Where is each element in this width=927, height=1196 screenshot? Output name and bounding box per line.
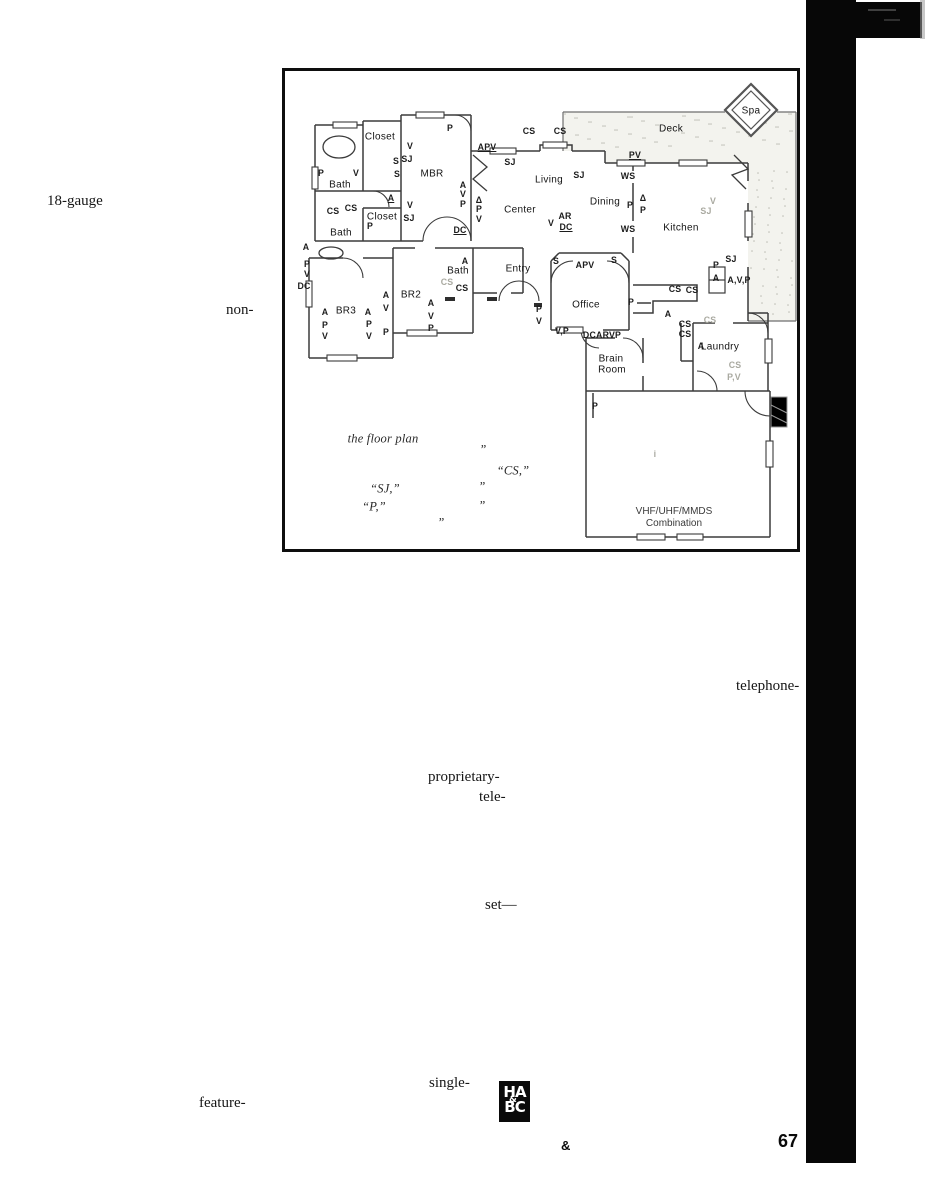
page-number: 67: [778, 1131, 798, 1152]
text-fragment: telephone-: [736, 678, 799, 695]
antenna-label-line2: Combination: [636, 518, 713, 530]
text-fragment: proprietary-: [428, 769, 500, 786]
text-fragment: set—: [485, 897, 517, 914]
text-fragment: single-: [429, 1075, 470, 1092]
text-fragment: 18-gauge: [47, 193, 103, 210]
publisher-logo: HA BC &: [499, 1081, 530, 1122]
caption-fragment: i: [654, 449, 657, 459]
caption-fragment: “P,”: [362, 500, 386, 515]
text-fragment: non-: [226, 302, 254, 319]
caption-fragment: the floor plan: [348, 432, 419, 447]
scan-speckle: [884, 19, 900, 21]
scan-artifact-edge: [920, 0, 925, 39]
antenna-label-line1: VHF/UHF/MMDS: [636, 506, 713, 518]
scan-artifact-bar: [806, 0, 856, 1163]
caption-fragments: the floor plan”“CS,”“SJ,””“P,”””i: [285, 71, 797, 549]
text-fragment: tele-: [479, 789, 506, 806]
logo-ampersand: &: [509, 1095, 517, 1105]
floor-plan-drawing: ClosetMBRBathClosetBathBR3BR2BathEntryLi…: [285, 71, 797, 549]
caption-fragment: “CS,”: [497, 464, 530, 479]
scanned-page: { "page": { "text_fragments": [ {"text":…: [0, 0, 927, 1196]
caption-fragment: ”: [437, 516, 444, 531]
floor-plan-figure: ClosetMBRBathClosetBathBR3BR2BathEntryLi…: [282, 68, 800, 552]
scan-speckle: [868, 9, 896, 11]
caption-fragment: ”: [478, 499, 485, 514]
caption-fragment: ”: [479, 443, 486, 458]
caption-fragment: ”: [478, 480, 485, 495]
antenna-label: VHF/UHF/MMDS Combination: [636, 506, 713, 530]
text-fragment: feature-: [199, 1095, 246, 1112]
caption-fragment: “SJ,”: [370, 482, 400, 497]
footer-ampersand: &: [561, 1138, 570, 1153]
